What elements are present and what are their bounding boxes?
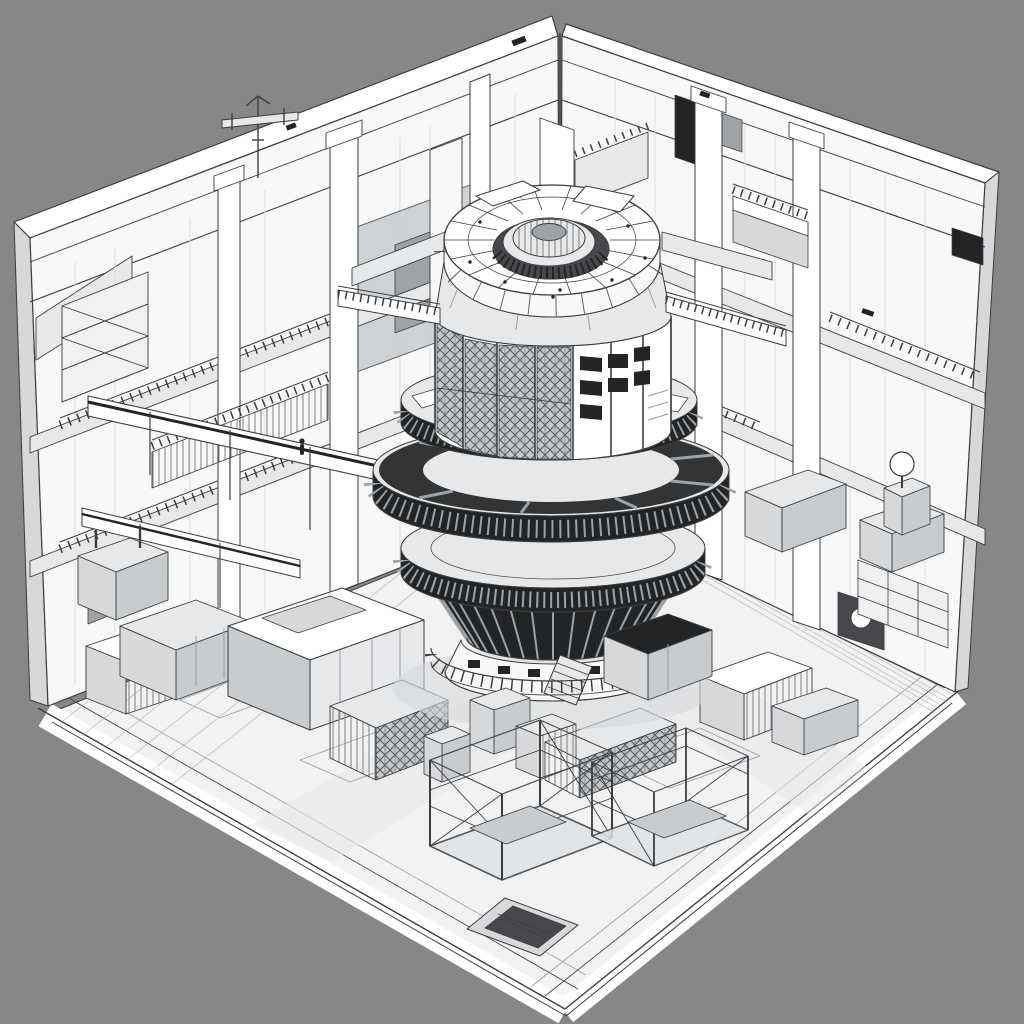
tower-hub [503, 218, 595, 266]
cutaway-illustration: Isometric cutaway illustration of an ind… [0, 0, 1024, 1024]
tower-top-ring [444, 181, 660, 317]
